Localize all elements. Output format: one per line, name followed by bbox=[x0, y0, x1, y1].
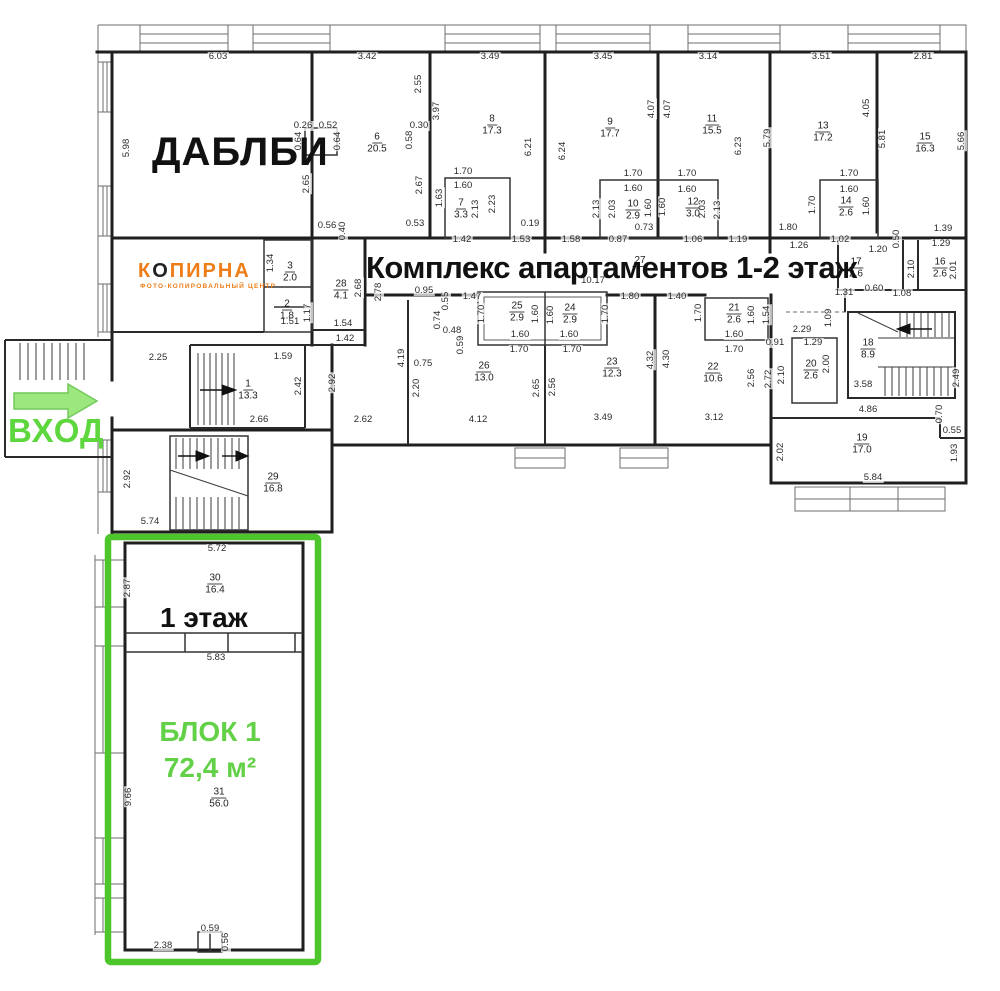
dimension-label: 1.42 bbox=[452, 235, 473, 245]
room-label-14: 142.6 bbox=[838, 194, 853, 219]
kopirna-rest: ПИРНА bbox=[170, 260, 251, 282]
dimension-label: 5.72 bbox=[207, 544, 228, 554]
dimension-label: 4.19 bbox=[397, 348, 407, 369]
dimension-label: 0.50 bbox=[892, 229, 902, 250]
dimension-label: 0.56 bbox=[317, 221, 338, 231]
dimension-label: 1.29 bbox=[931, 239, 952, 249]
room-area: 17.2 bbox=[813, 133, 832, 144]
dimension-label: 2.10 bbox=[777, 365, 787, 386]
room-number: 14 bbox=[838, 196, 853, 208]
dimension-label: 2.87 bbox=[123, 578, 133, 599]
dimension-label: 5.74 bbox=[140, 517, 161, 527]
dimension-label: 1.60 bbox=[546, 305, 556, 326]
dimension-label: 0.55 bbox=[942, 426, 963, 436]
dimension-label: 0.53 bbox=[405, 219, 426, 229]
room-number: 30 bbox=[207, 573, 222, 585]
dimension-label: 1.60 bbox=[531, 304, 541, 325]
dimension-label: 1.40 bbox=[667, 292, 688, 302]
dimension-label: 2.29 bbox=[792, 325, 813, 335]
room-number: 19 bbox=[854, 433, 869, 445]
room-area: 2.6 bbox=[803, 371, 818, 382]
dimension-label: 0.70 bbox=[935, 404, 945, 425]
dimension-label: 1.93 bbox=[950, 443, 960, 464]
room-label-8: 817.3 bbox=[482, 112, 501, 137]
dimension-label: 5.98 bbox=[122, 138, 132, 159]
plan-title: Комплекс апартаментов 1-2 этаж bbox=[366, 250, 857, 286]
dimension-label: 0.55 bbox=[441, 291, 451, 312]
dimension-label: 1.70 bbox=[808, 195, 818, 216]
room-area: 16.4 bbox=[205, 585, 224, 596]
room-area: 20.5 bbox=[367, 144, 386, 155]
dimension-label: 2.20 bbox=[412, 378, 422, 399]
room-label-12: 123.0 bbox=[685, 195, 700, 220]
room-label-6: 620.5 bbox=[367, 130, 386, 155]
dimension-label: 2.13 bbox=[471, 199, 481, 220]
room-label-24: 242.9 bbox=[562, 301, 577, 326]
room-number: 18 bbox=[860, 338, 875, 350]
room-label-7: 73.3 bbox=[454, 196, 468, 221]
tenant-dablbi-label: ДАБЛБИ bbox=[152, 130, 329, 175]
room-area: 56.0 bbox=[209, 799, 228, 810]
dimension-label: 3.58 bbox=[853, 380, 874, 390]
dimension-label: 2.38 bbox=[153, 941, 174, 951]
room-label-20: 202.6 bbox=[803, 357, 818, 382]
dimension-label: 1.60 bbox=[453, 181, 474, 191]
dimension-label: 2.01 bbox=[949, 260, 959, 281]
dimension-label: 1.70 bbox=[453, 167, 474, 177]
dimension-label: 0.56 bbox=[221, 932, 231, 953]
dimension-label: 2.92 bbox=[328, 373, 338, 394]
dimension-label: 6.23 bbox=[734, 136, 744, 157]
room-area: 17.7 bbox=[600, 129, 619, 140]
dimension-label: 0.59 bbox=[456, 335, 466, 356]
dimension-label: 1.47 bbox=[462, 292, 483, 302]
dimension-label: 1.29 bbox=[803, 338, 824, 348]
dimension-label: 2.03 bbox=[608, 199, 618, 220]
dimension-label: 9.66 bbox=[124, 787, 134, 808]
room-number: 29 bbox=[265, 472, 280, 484]
dimension-label: 1.39 bbox=[933, 224, 954, 234]
dimension-label: 0.95 bbox=[414, 286, 435, 296]
dimension-label: 2.68 bbox=[354, 278, 364, 299]
dimension-label: 5.83 bbox=[206, 653, 227, 663]
room-label-29: 2916.8 bbox=[263, 470, 282, 495]
room-label-11: 1115.5 bbox=[702, 112, 721, 137]
room-area: 16.8 bbox=[263, 484, 282, 495]
dimension-label: 2.65 bbox=[532, 378, 542, 399]
dimension-label: 2.55 bbox=[414, 74, 424, 95]
room-area: 2.9 bbox=[562, 315, 577, 326]
dimension-label: 1.70 bbox=[677, 169, 698, 179]
dimension-label: 1.20 bbox=[868, 245, 889, 255]
dimension-label: 1.80 bbox=[620, 292, 641, 302]
dimension-label: 0.73 bbox=[634, 223, 655, 233]
room-number: 13 bbox=[815, 121, 830, 133]
dimension-label: 2.72 bbox=[764, 369, 774, 390]
room-number: 16 bbox=[932, 257, 947, 269]
dimension-label: 0.19 bbox=[520, 219, 541, 229]
dimension-label: 1.80 bbox=[778, 223, 799, 233]
dimension-label: 4.07 bbox=[647, 99, 657, 120]
room-label-21: 212.6 bbox=[726, 301, 741, 326]
room-label-19: 1917.0 bbox=[852, 431, 871, 456]
room-number: 10 bbox=[625, 199, 640, 211]
dimension-label: 5.84 bbox=[863, 473, 884, 483]
room-number: 15 bbox=[917, 132, 932, 144]
floorplan-page: 6.033.423.493.453.143.512.815.982.922.87… bbox=[0, 0, 1000, 991]
dimension-label: 3.14 bbox=[698, 52, 719, 62]
dimension-label: 1.70 bbox=[694, 303, 704, 324]
room-label-26: 2613.0 bbox=[474, 359, 493, 384]
room-number: 28 bbox=[333, 279, 348, 291]
dimension-label: 1.70 bbox=[477, 304, 487, 325]
room-label-2: 21.8 bbox=[280, 297, 294, 322]
dimension-label: 1.42 bbox=[335, 334, 356, 344]
dimension-label: 2.00 bbox=[822, 354, 832, 375]
dimension-label: 1.70 bbox=[724, 345, 745, 355]
room-area: 13.3 bbox=[238, 391, 257, 402]
room-label-31: 3156.0 bbox=[209, 785, 228, 810]
room-number: 8 bbox=[487, 114, 497, 126]
room-number: 12 bbox=[685, 197, 700, 209]
dimension-label: 3.42 bbox=[357, 52, 378, 62]
dimension-label: 2.49 bbox=[952, 368, 962, 389]
dimension-label: 1.70 bbox=[562, 345, 583, 355]
dimension-label: 1.53 bbox=[511, 235, 532, 245]
room-area: 8.9 bbox=[860, 350, 875, 361]
dimension-label: 2.25 bbox=[148, 353, 169, 363]
room-number: 1 bbox=[243, 379, 253, 391]
kopirna-k: К bbox=[138, 260, 152, 282]
dimension-label: 1.63 bbox=[435, 188, 445, 209]
room-area: 12.3 bbox=[602, 369, 621, 380]
dimension-label: 0.64 bbox=[333, 131, 343, 152]
dimension-label: 2.65 bbox=[302, 174, 312, 195]
room-label-13: 1317.2 bbox=[813, 119, 832, 144]
dimension-label: 2.02 bbox=[776, 442, 786, 463]
room-label-30: 3016.4 bbox=[205, 571, 224, 596]
dimension-label: 5.66 bbox=[957, 131, 967, 152]
dimension-label: 2.81 bbox=[913, 52, 934, 62]
dimension-label: 0.75 bbox=[413, 359, 434, 369]
room-number: 20 bbox=[803, 359, 818, 371]
room-number: 25 bbox=[509, 301, 524, 313]
room-area: 2.0 bbox=[283, 273, 297, 284]
room-label-23: 2312.3 bbox=[602, 355, 621, 380]
room-area: 4.1 bbox=[333, 291, 348, 302]
dimension-label: 1.02 bbox=[830, 235, 851, 245]
dimension-label: 1.60 bbox=[623, 184, 644, 194]
dimension-label: 1.60 bbox=[677, 185, 698, 195]
dimension-label: 2.42 bbox=[294, 376, 304, 397]
dimension-label: 6.24 bbox=[558, 141, 568, 162]
kopirna-o-icon: О bbox=[152, 260, 170, 282]
room-area: 3.0 bbox=[685, 209, 700, 220]
room-area: 17.3 bbox=[482, 126, 501, 137]
room-area: 13.0 bbox=[474, 373, 493, 384]
room-area: 3.3 bbox=[454, 210, 468, 221]
dimension-label: 1.59 bbox=[273, 352, 294, 362]
dimension-label: 2.23 bbox=[488, 194, 498, 215]
room-area: 2.6 bbox=[932, 269, 947, 280]
room-number: 22 bbox=[705, 362, 720, 374]
room-area: 2.9 bbox=[625, 211, 640, 222]
dimension-label: 2.56 bbox=[548, 377, 558, 398]
dimension-label: 1.60 bbox=[862, 196, 872, 217]
dimension-label: 2.66 bbox=[249, 415, 270, 425]
room-number: 2 bbox=[282, 299, 292, 311]
dimension-label: 1.58 bbox=[561, 235, 582, 245]
room-label-15: 1516.3 bbox=[915, 130, 934, 155]
room-label-16: 162.6 bbox=[932, 255, 947, 280]
dimension-label: 1.19 bbox=[728, 235, 749, 245]
dimension-label: 1.60 bbox=[510, 330, 531, 340]
dimension-label: 4.12 bbox=[468, 415, 489, 425]
dimension-label: 3.12 bbox=[704, 413, 725, 423]
room-label-28: 284.1 bbox=[333, 277, 348, 302]
dimension-label: 2.13 bbox=[713, 200, 723, 221]
dimension-label: 6.21 bbox=[524, 137, 534, 158]
room-number: 9 bbox=[605, 117, 615, 129]
room-number: 24 bbox=[562, 303, 577, 315]
block1-area: 72,4 м² bbox=[164, 752, 256, 784]
dimension-label: 3.49 bbox=[593, 413, 614, 423]
tenant-kopirna-subtitle: ФОТО-КОПИРОВАЛЬНЫЙ ЦЕНТР bbox=[140, 283, 276, 290]
dimension-label: 3.45 bbox=[593, 52, 614, 62]
tenant-kopirna-logo: КОПИРНА bbox=[138, 261, 251, 281]
dimension-label: 4.32 bbox=[646, 350, 656, 371]
dimension-label: 1.60 bbox=[724, 330, 745, 340]
dimension-label: 5.81 bbox=[878, 129, 888, 150]
dimension-label: 2.13 bbox=[592, 199, 602, 220]
dimension-label: 4.07 bbox=[663, 99, 673, 120]
dimension-label: 1.60 bbox=[658, 197, 668, 218]
room-label-9: 917.7 bbox=[600, 115, 619, 140]
dimension-label: 1.31 bbox=[834, 288, 855, 298]
dimension-label: 2.62 bbox=[353, 415, 374, 425]
dimension-label: 1.70 bbox=[509, 345, 530, 355]
dimension-label: 1.06 bbox=[683, 235, 704, 245]
room-label-22: 2210.6 bbox=[703, 360, 722, 385]
room-label-25: 252.9 bbox=[509, 299, 524, 324]
room-area: 16.3 bbox=[915, 144, 934, 155]
dimension-label: 3.97 bbox=[432, 101, 442, 122]
room-area: 17.0 bbox=[852, 445, 871, 456]
dimension-label: 2.92 bbox=[123, 469, 133, 490]
dimension-label: 1.17 bbox=[303, 303, 313, 324]
dimension-label: 1.70 bbox=[623, 169, 644, 179]
room-number: 21 bbox=[726, 303, 741, 315]
dimension-label: 3.51 bbox=[811, 52, 832, 62]
dimension-label: 0.60 bbox=[864, 284, 885, 294]
dimension-label: 0.91 bbox=[765, 338, 786, 348]
room-number: 6 bbox=[372, 132, 382, 144]
dimension-label: 0.40 bbox=[338, 221, 348, 242]
dimension-label: 4.86 bbox=[858, 405, 879, 415]
room-number: 7 bbox=[456, 198, 466, 210]
dimension-label: 1.70 bbox=[601, 304, 611, 325]
dimension-label: 0.58 bbox=[405, 130, 415, 151]
room-area: 2.9 bbox=[509, 313, 524, 324]
room-number: 23 bbox=[604, 357, 619, 369]
room-label-3: 32.0 bbox=[283, 259, 297, 284]
dimension-label: 2.67 bbox=[415, 175, 425, 196]
room-number: 31 bbox=[211, 787, 226, 799]
dimension-label: 0.87 bbox=[608, 235, 629, 245]
room-label-10: 102.9 bbox=[625, 197, 640, 222]
dimension-label: 1.08 bbox=[892, 289, 913, 299]
dimension-label: 2.10 bbox=[907, 259, 917, 280]
dimension-label: 5.79 bbox=[763, 128, 773, 149]
block1-floor-label: 1 этаж bbox=[160, 602, 248, 634]
dimension-label: 1.54 bbox=[762, 305, 772, 326]
room-number: 26 bbox=[476, 361, 491, 373]
dimension-label: 1.34 bbox=[266, 253, 276, 274]
dimension-label: 4.30 bbox=[662, 349, 672, 370]
room-area: 2.6 bbox=[838, 208, 853, 219]
dimension-label: 6.03 bbox=[208, 52, 229, 62]
room-number: 11 bbox=[705, 114, 719, 126]
entrance-label: ВХОД bbox=[8, 412, 104, 450]
room-label-18: 188.9 bbox=[860, 336, 875, 361]
dimension-label: 3.49 bbox=[480, 52, 501, 62]
dimension-label: 1.60 bbox=[559, 330, 580, 340]
dimension-label: 1.54 bbox=[333, 319, 354, 329]
dimension-label: 1.60 bbox=[644, 198, 654, 219]
dimension-label: 1.60 bbox=[747, 305, 757, 326]
block1-name: БЛОК 1 bbox=[159, 716, 260, 748]
dimension-label: 2.56 bbox=[747, 368, 757, 389]
room-label-1: 113.3 bbox=[238, 377, 257, 402]
dimension-label: 1.70 bbox=[839, 169, 860, 179]
dimension-label: 0.59 bbox=[200, 924, 221, 934]
room-area: 15.5 bbox=[702, 126, 721, 137]
room-number: 3 bbox=[285, 261, 295, 273]
dimension-label: 1.09 bbox=[824, 308, 834, 329]
dimension-label: 4.05 bbox=[862, 98, 872, 119]
room-area: 2.6 bbox=[726, 315, 741, 326]
dimension-labels-layer: 6.033.423.493.453.143.512.815.982.922.87… bbox=[0, 0, 1000, 991]
room-area: 1.8 bbox=[280, 311, 294, 322]
room-area: 10.6 bbox=[703, 374, 722, 385]
